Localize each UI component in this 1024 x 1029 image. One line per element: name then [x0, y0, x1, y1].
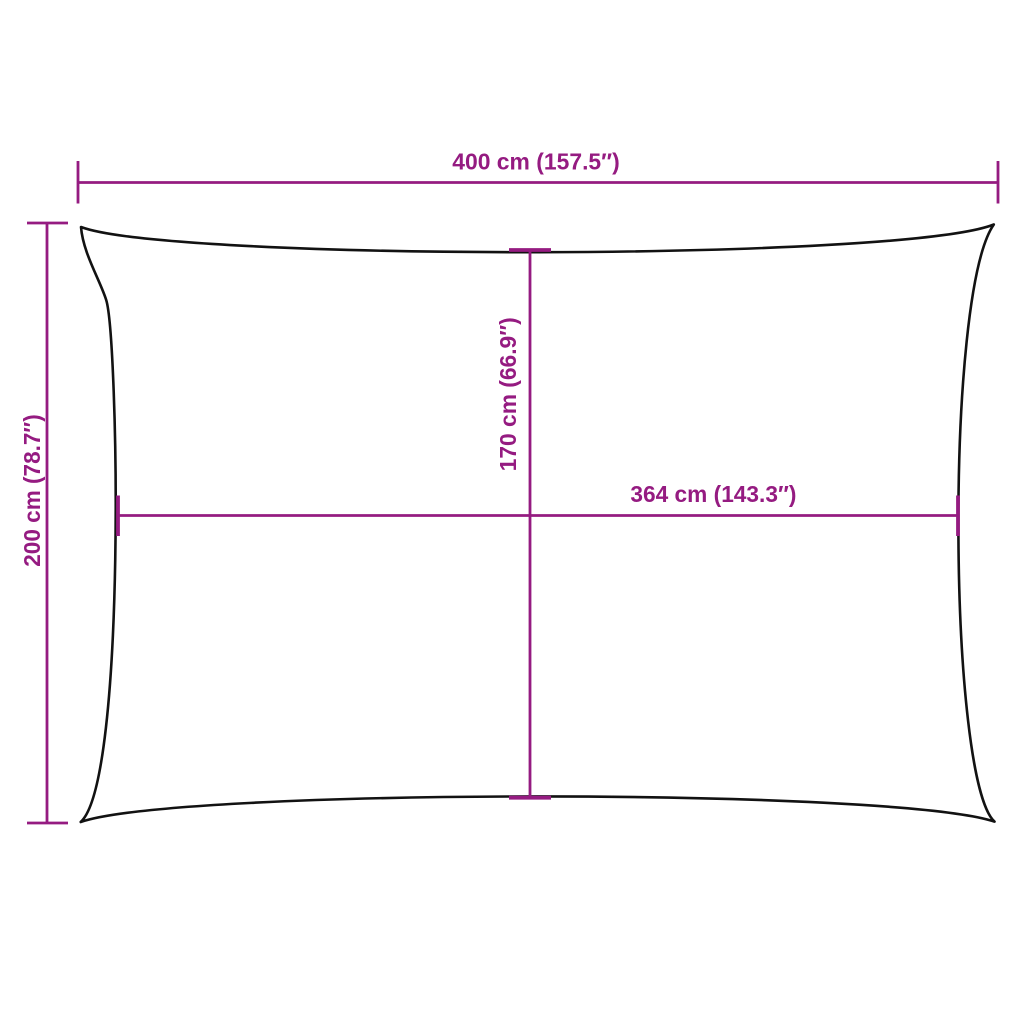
svg-text:364 cm (143.3″): 364 cm (143.3″) — [630, 481, 796, 507]
svg-text:400 cm (157.5″): 400 cm (157.5″) — [452, 149, 620, 175]
svg-text:200 cm (78.7″): 200 cm (78.7″) — [19, 414, 45, 567]
svg-text:170 cm (66.9″): 170 cm (66.9″) — [495, 317, 521, 471]
